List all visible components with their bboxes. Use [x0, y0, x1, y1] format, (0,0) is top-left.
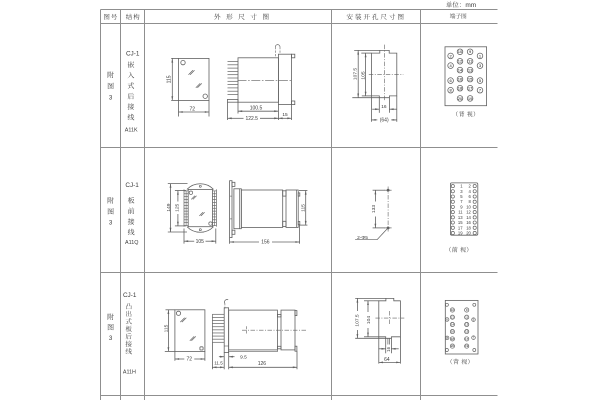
- svg-text:9.5: 9.5: [240, 355, 247, 361]
- svg-text:115: 115: [301, 204, 307, 212]
- svg-text:11: 11: [465, 315, 468, 319]
- svg-text:19: 19: [468, 96, 473, 101]
- svg-text:17: 17: [468, 86, 473, 91]
- svg-text:14: 14: [458, 68, 463, 73]
- svg-text:115: 115: [163, 324, 169, 332]
- svg-text:133: 133: [371, 205, 377, 213]
- svg-text:CJ-1: CJ-1: [123, 292, 137, 299]
- svg-text:122.5: 122.5: [245, 116, 258, 122]
- svg-text:20: 20: [458, 96, 463, 101]
- svg-text:115: 115: [166, 75, 172, 83]
- svg-text:16: 16: [386, 346, 391, 351]
- svg-text:14: 14: [451, 323, 455, 327]
- svg-text:13: 13: [465, 323, 469, 327]
- svg-text:19: 19: [458, 230, 463, 235]
- svg-text:15: 15: [468, 77, 473, 82]
- svg-text:(64): (64): [380, 118, 389, 124]
- svg-text:15: 15: [282, 112, 288, 118]
- svg-text:3: 3: [109, 335, 113, 342]
- svg-text:107.5: 107.5: [354, 314, 360, 327]
- svg-text:126: 126: [258, 361, 267, 367]
- svg-text:18: 18: [458, 86, 463, 91]
- svg-text:A11K: A11K: [125, 128, 138, 134]
- svg-text:105: 105: [196, 239, 205, 245]
- svg-text:12: 12: [451, 315, 455, 319]
- svg-text:11.5: 11.5: [214, 361, 223, 366]
- svg-text:16: 16: [451, 330, 455, 334]
- svg-text:149: 149: [166, 203, 172, 211]
- svg-text:12: 12: [458, 59, 463, 64]
- svg-text:A11Q: A11Q: [125, 240, 138, 246]
- svg-text:19: 19: [465, 344, 469, 348]
- svg-text:2-Φ5: 2-Φ5: [357, 235, 368, 241]
- svg-text:16: 16: [381, 104, 387, 110]
- svg-text:64: 64: [384, 357, 390, 363]
- svg-text:A11H: A11H: [123, 370, 136, 376]
- svg-text:100.5: 100.5: [250, 105, 263, 111]
- svg-text:mm: mm: [465, 2, 476, 9]
- svg-text:3: 3: [109, 220, 113, 227]
- svg-text:10: 10: [451, 308, 455, 312]
- svg-text:15: 15: [465, 330, 469, 334]
- svg-text:18: 18: [451, 337, 455, 341]
- svg-text:CJ-1: CJ-1: [126, 50, 140, 57]
- svg-text:156: 156: [261, 240, 270, 246]
- svg-text:13: 13: [468, 68, 473, 73]
- svg-text:3: 3: [109, 94, 113, 101]
- svg-text:72: 72: [190, 106, 196, 112]
- svg-text:72: 72: [187, 357, 193, 363]
- svg-text:107.5: 107.5: [352, 68, 358, 81]
- svg-text:125: 125: [175, 203, 181, 211]
- svg-text:CJ-1: CJ-1: [125, 182, 139, 189]
- svg-text:16: 16: [458, 77, 463, 82]
- svg-text:105: 105: [360, 71, 366, 79]
- svg-text:20: 20: [466, 230, 471, 235]
- svg-text:10: 10: [458, 49, 463, 54]
- svg-text:20: 20: [451, 344, 455, 348]
- svg-text:104: 104: [366, 316, 372, 324]
- svg-text:17: 17: [465, 337, 469, 341]
